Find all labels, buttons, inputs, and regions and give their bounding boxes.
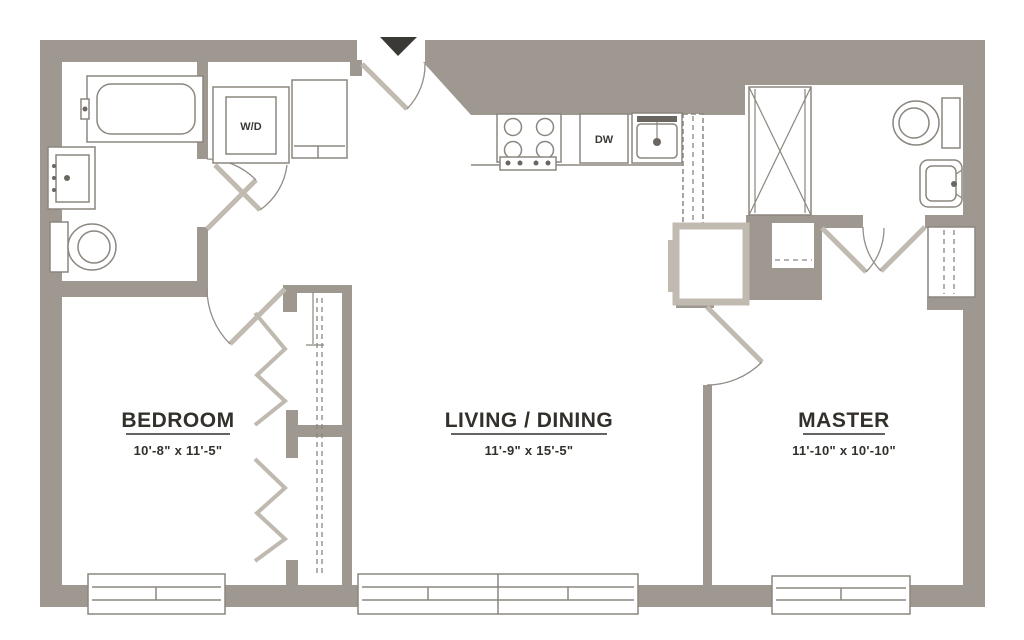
bathtub-drain [83,107,88,112]
master-toilet-tank [942,98,960,148]
living-dims: 11'-9" x 15'-5" [485,443,574,458]
wall-master-bath-south-left [822,215,863,228]
wall-entry-hinge-stub [350,60,362,76]
master-toilet [893,98,960,148]
master-hall-closet-door-leaf [822,228,866,272]
refrigerator [683,114,703,224]
linen-closet [928,227,975,297]
wall-bathroom-south [40,281,205,297]
dishwasher-label: DW [595,134,614,146]
wall-top-left [40,40,357,62]
bifold-doors-upper [255,313,285,425]
wall-master-north [927,297,985,310]
master-bath-door-leaf [881,227,925,271]
master-door-leaf [707,307,762,362]
entry-door-arc [407,64,425,109]
wall-kitchen-header [423,62,745,115]
bedroom-window [88,574,225,614]
windows [88,574,910,614]
toilet [50,222,116,272]
wall-left [40,40,62,607]
wall-bathroom-east-lower [197,227,208,297]
sink-backsplash [637,116,677,122]
bedroom-door-arc [207,289,230,344]
kitchen-sink [632,113,682,163]
toilet-tank [50,222,68,272]
vanity-sink [48,147,95,209]
wall-master-bath-south-right [925,215,985,228]
wall-top-right [425,40,985,62]
floor-plan: W/D [0,0,1024,640]
bathtub [81,76,203,142]
wall-closet-stub-top [283,285,297,312]
stove [497,114,561,170]
washer-dryer-label: W/D [240,121,261,133]
hall-closet [292,80,347,158]
dishwasher: DW [580,114,628,163]
kitchen: DW [471,113,703,224]
living-window [358,574,638,614]
pantry-closet [668,226,746,302]
wd-door-leaf [215,165,260,210]
master-door [707,307,762,385]
master-label: MASTER [798,409,890,432]
pantry-box [676,226,746,302]
entry [362,37,425,109]
wall-right [963,40,985,607]
bifold-doors-lower [255,459,285,561]
master-hall-niche [772,223,814,268]
sink-faucet [653,138,661,146]
master-dims: 11'-10" x 10'-10" [792,443,896,458]
entry-marker-triangle-down-icon [380,37,417,56]
master-sink-faucet [951,181,957,187]
pantry-door-tab [668,240,676,292]
room-labels: BEDROOM 10'-8" x 11'-5" LIVING / DINING … [121,409,896,458]
niche-opening [772,223,814,268]
bedroom-label: BEDROOM [121,409,234,432]
entry-door-leaf [362,64,407,109]
master-closet [749,87,811,215]
bathroom-door-leaf [207,180,256,229]
wall-living-master [703,385,712,585]
linen-closet-box [928,227,975,297]
master-door-arc [707,362,762,385]
wall-top-far-right [745,62,985,85]
living-label: LIVING / DINING [445,409,614,432]
master-sink [920,160,962,207]
washer-dryer-closet: W/D [213,87,289,210]
wall-closet-stub-bottom [286,560,298,585]
bedroom-dims: 10'-8" x 11'-5" [134,443,223,458]
vanity-faucet [64,175,70,181]
master-window [772,576,910,614]
master-hall-closet-door-arc [866,228,884,272]
wall-closet-divider [288,425,352,437]
wd-door-arc [260,165,287,210]
